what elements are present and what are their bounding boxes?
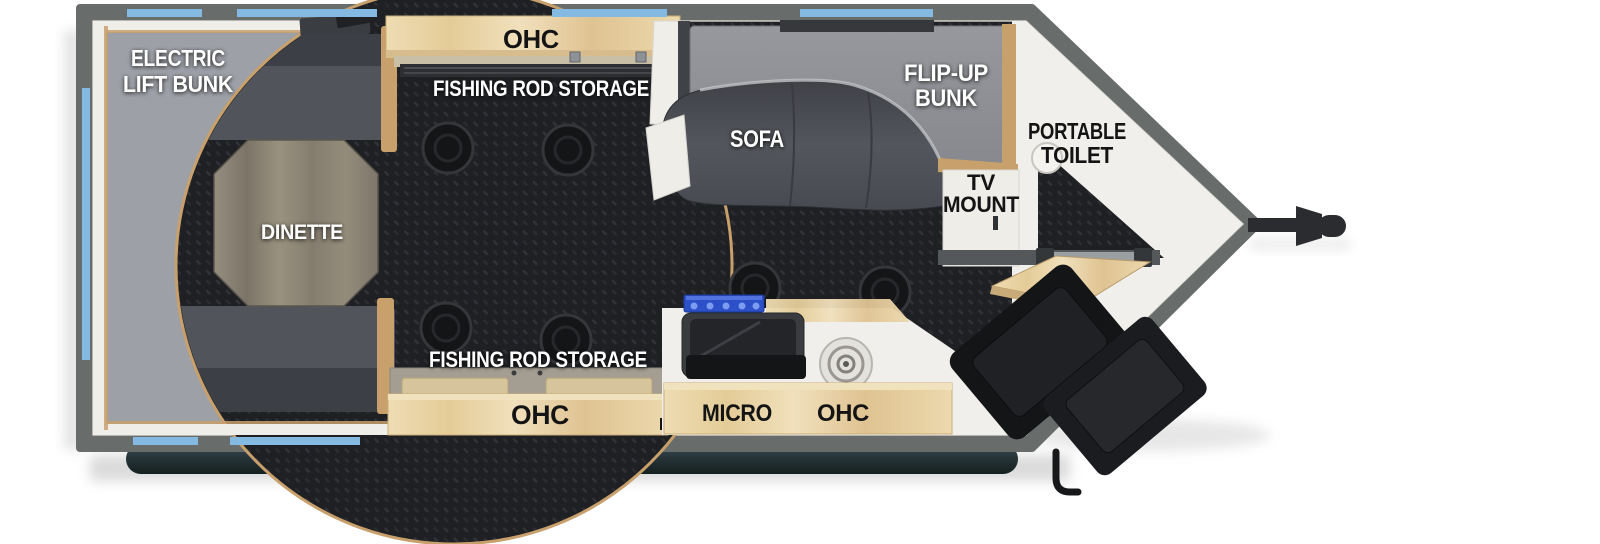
ohc-bottom-label: OHC: [511, 400, 569, 430]
electric-lift-bunk-label-1: ELECTRIC: [131, 45, 225, 71]
microwave-tray: [686, 355, 806, 379]
electric-lift-bunk-label-2: LIFT BUNK: [123, 71, 234, 97]
floor-mount-icon: [543, 125, 593, 175]
floorplan: DINETTE ELECTRIC LIFT BUNK OHC FISHING R…: [0, 0, 1600, 544]
cooktop-knob: [707, 303, 714, 310]
window-top: [552, 9, 667, 17]
ohc-top-label: OHC: [503, 24, 560, 54]
rod-clip: [570, 52, 580, 62]
kitchen-ohc-label: OHC: [817, 400, 869, 427]
floor-mount-icon: [421, 303, 471, 353]
round-vent-icon: [820, 338, 872, 390]
rod-top: [404, 67, 660, 69]
window-rear: [82, 88, 90, 360]
wood-trim-rear: [104, 26, 108, 430]
bunk-trim-right: [1002, 24, 1016, 176]
window-top: [800, 9, 933, 17]
portable-toilet-label-2: TOILET: [1041, 142, 1113, 168]
cooktop-highlight: [686, 296, 762, 300]
micro-label: MICRO: [702, 400, 772, 427]
portable-toilet-label-1: PORTABLE: [1028, 118, 1126, 144]
cooktop-knob: [739, 303, 746, 310]
hitch-arm: [1248, 218, 1302, 232]
floorplan-canvas: DINETTE ELECTRIC LIFT BUNK OHC FISHING R…: [0, 0, 1600, 544]
flip-up-bunk-label-1: FLIP-UP: [904, 60, 988, 87]
wood-trim-bottom: [100, 421, 392, 424]
window-bottom: [133, 437, 198, 445]
window-bottom: [230, 437, 360, 445]
rod-storage-top-label: FISHING ROD STORAGE: [433, 76, 649, 101]
sofa-armrest-panel: [646, 115, 690, 200]
cooktop-knob: [723, 303, 730, 310]
bunk-back-strip: [780, 20, 934, 32]
wood-trim-top: [100, 30, 315, 33]
sofa-label: SOFA: [730, 126, 784, 153]
tv-mount-label-2: MOUNT: [943, 192, 1020, 217]
cooktop-knob: [753, 303, 760, 310]
dinette-label: DINETTE: [261, 221, 343, 244]
cooktop-knob: [691, 303, 698, 310]
floor-mount-icon: [423, 123, 473, 173]
rod-top-2: [404, 72, 660, 74]
flip-up-bunk-label-2: BUNK: [915, 85, 978, 112]
dinette-bench-bottom: [175, 306, 395, 378]
tv-bracket: [993, 216, 998, 230]
window-top: [237, 9, 377, 17]
window-top: [127, 9, 202, 17]
rod-clip: [636, 52, 646, 62]
wall-lining-bottom: [93, 424, 392, 435]
rod-storage-bottom-label: FISHING ROD STORAGE: [429, 347, 647, 372]
micro-ohc-edge: [664, 383, 952, 390]
hitch-ball-socket: [1318, 215, 1346, 237]
